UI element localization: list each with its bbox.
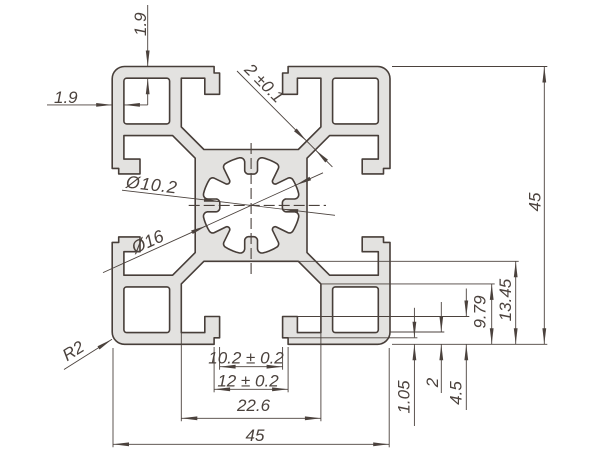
svg-text:1.9: 1.9	[131, 12, 150, 36]
svg-text:13.45: 13.45	[496, 278, 515, 321]
svg-text:10.2 ± 0.2: 10.2 ± 0.2	[208, 349, 284, 368]
svg-text:1.9: 1.9	[54, 88, 78, 107]
svg-text:22.6: 22.6	[236, 396, 271, 415]
svg-text:45: 45	[246, 426, 265, 445]
svg-text:1.05: 1.05	[395, 380, 414, 414]
svg-text:45: 45	[526, 192, 545, 211]
svg-text:9.79: 9.79	[471, 295, 490, 329]
svg-text:2: 2	[423, 377, 442, 388]
svg-text:4.5: 4.5	[447, 381, 466, 405]
svg-text:12 ± 0.2: 12 ± 0.2	[217, 372, 279, 391]
